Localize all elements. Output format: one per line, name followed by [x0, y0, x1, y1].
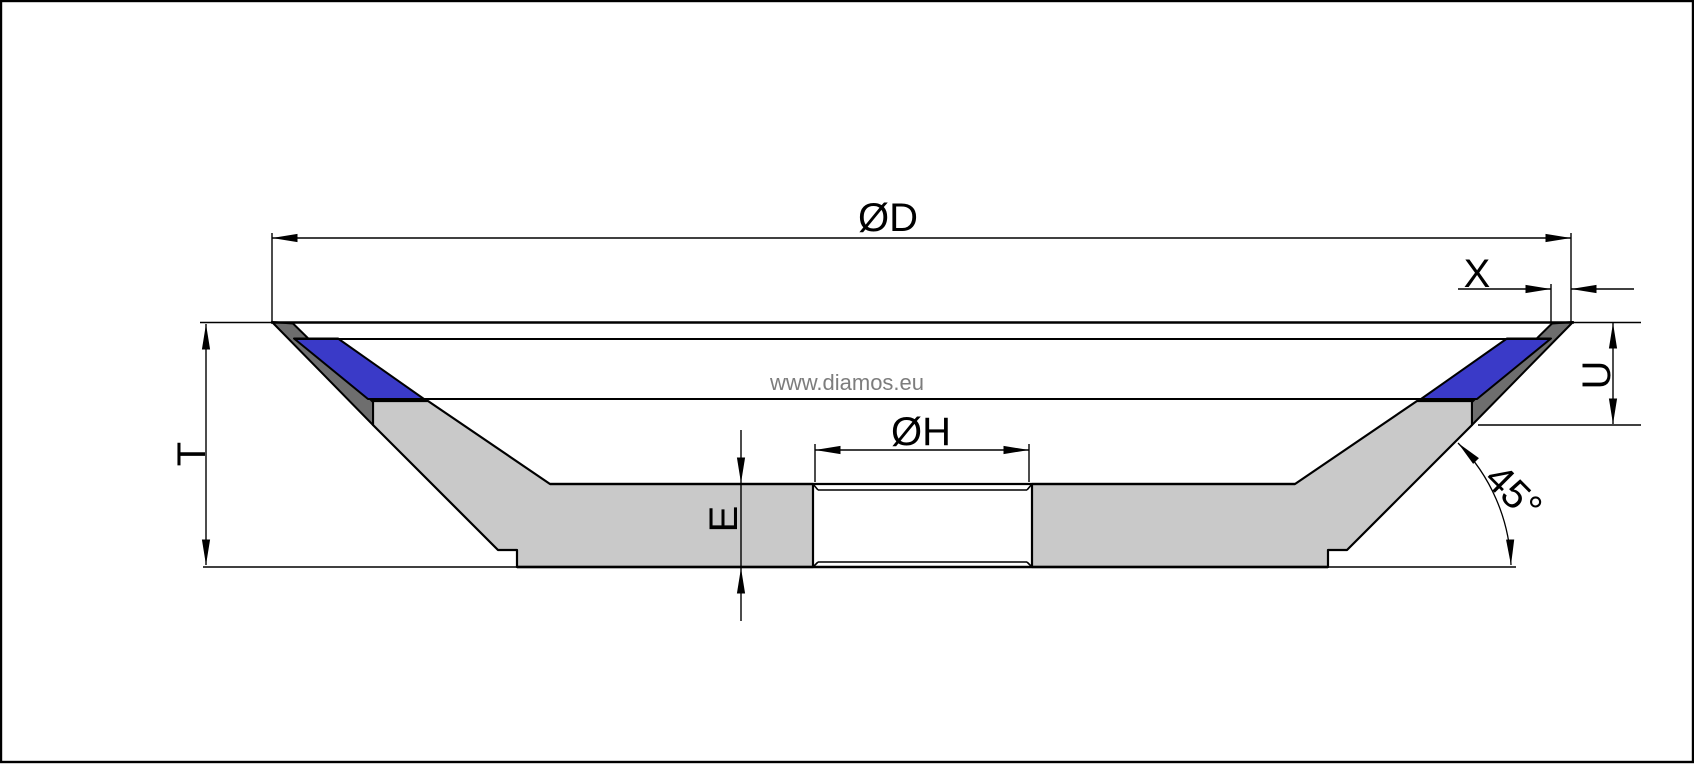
dim-u-label: U: [1575, 361, 1619, 390]
dim-angle-label: 45°: [1476, 456, 1550, 530]
bore-detail: [813, 484, 1032, 567]
dimension-rim-width-x: X: [1458, 252, 1634, 322]
dimension-outer-diameter: ØD: [272, 196, 1571, 322]
diamond-segment-right: [1421, 339, 1551, 400]
drawing-stage: ØD X U T E ØH 45° www.: [0, 0, 1694, 764]
diamond-segment-left: [294, 339, 424, 400]
technical-drawing-canvas: ØD X U T E ØH 45° www.: [0, 0, 1694, 764]
dim-h-label: ØH: [891, 410, 951, 454]
dimension-hub-thickness-e: E: [702, 430, 746, 621]
dim-x-label: X: [1464, 252, 1491, 296]
watermark-text: www.diamos.eu: [769, 370, 924, 395]
dim-t-label: T: [170, 442, 214, 466]
dim-d-label: ØD: [858, 196, 918, 240]
dimension-bore-diameter: ØH: [815, 410, 1029, 482]
dim-e-label: E: [702, 506, 746, 533]
